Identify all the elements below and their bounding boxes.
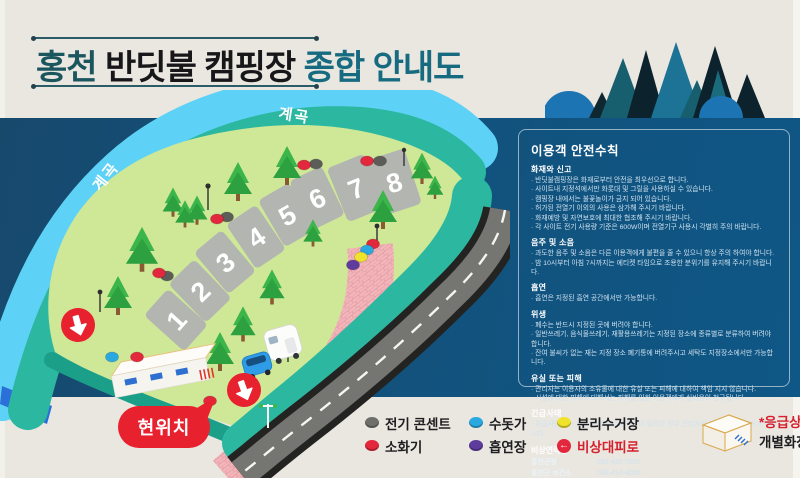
fire-extinguisher-marker bbox=[211, 214, 224, 224]
contact-row: 홍천군청033-432-7801 bbox=[531, 458, 777, 469]
smoking-area-marker bbox=[347, 260, 360, 270]
contact-name: 홍천군 보건소 bbox=[531, 469, 597, 478]
safety-heading: 이용객 안전수칙 bbox=[531, 140, 777, 159]
title-suffix: 종합 안내도 bbox=[295, 49, 463, 87]
legend-label: 수돗가 bbox=[489, 413, 526, 433]
water-tap-icon bbox=[469, 417, 483, 428]
section-title: 흡연 bbox=[531, 282, 777, 293]
legend-label: 전기 콘센트 bbox=[385, 413, 451, 433]
legend-item-smoking-area: 흡연장 bbox=[469, 436, 557, 456]
section-title: 화재와 신고 bbox=[531, 164, 777, 175]
electric-outlet-marker bbox=[374, 156, 387, 166]
rule-item: · 반딧불캠핑장은 화재로부터 안전을 최우선으로 합니다. bbox=[531, 176, 777, 185]
rule-item: · 일반쓰레기, 음식물쓰레기, 재활용쓰레기는 지정된 장소에 종류별로 분류… bbox=[531, 330, 777, 349]
section-items: · 관리자는 이용자의 소유물에 대한 유실 또는 피해에 대하여 책임 지지 … bbox=[531, 385, 777, 404]
safety-rules-panel: 이용객 안전수칙 화재와 신고· 반딧불캠핑장은 화재로부터 안전을 최우선으로… bbox=[518, 129, 790, 387]
campground-sign: 홍천 반딧불 캠핑장 종합 안내도 bbox=[0, 0, 800, 478]
rule-item: · 잔여 불씨가 없는 재는 지정 장소 폐기통에 버려주시고 세탁도 지정장소… bbox=[531, 349, 777, 368]
title-region: 홍천 bbox=[36, 49, 97, 87]
contact-value: 033-434-4000 bbox=[597, 469, 641, 478]
legend-label: 분리수거장 bbox=[577, 413, 639, 433]
recycling-station-icon bbox=[557, 417, 571, 428]
rule-item: · 흡연은 지정된 흡연 공간에서만 가능합니다. bbox=[531, 294, 777, 303]
title-bracket-top bbox=[33, 37, 317, 39]
facility-line-2: 개별화장실 / 매점 bbox=[759, 433, 800, 453]
rule-item: · 관리자는 이용자의 소유물에 대한 유실 또는 피해에 대하여 책임 지지 … bbox=[531, 385, 777, 394]
fire-extinguisher-marker bbox=[298, 160, 311, 170]
smoking-area-icon bbox=[469, 440, 483, 451]
title-name: 반딧불 캠핑장 bbox=[97, 49, 296, 87]
section-items: · 폐수는 반드시 지정된 곳에 버려야 합니다.· 일반쓰레기, 음식물쓰레기… bbox=[531, 321, 777, 368]
electric-outlet-marker bbox=[310, 159, 323, 169]
rule-item: · 화재예방 및 자연보호에 최대한 협조해 주시기 바랍니다. bbox=[531, 214, 777, 223]
page-title: 홍천 반딧불 캠핑장 종합 안내도 bbox=[36, 40, 463, 89]
fire-extinguisher-marker bbox=[361, 156, 374, 166]
title-bracket-bottom bbox=[33, 85, 317, 87]
contact-name: 홍천군청 bbox=[531, 458, 597, 469]
map-legend: 전기 콘센트수돗가분리수거장소화기흡연장←비상대피로 *응급상자 / 개수대 개… bbox=[365, 411, 800, 457]
legend-item-water-tap: 수돗가 bbox=[469, 413, 557, 433]
legend-label: 비상대피로 bbox=[577, 436, 639, 456]
electric-outlet-icon bbox=[365, 417, 379, 428]
contact-row: 홍천군 보건소033-434-4000 bbox=[531, 469, 777, 478]
fire-extinguisher-icon bbox=[365, 440, 379, 451]
svg-text:현위치: 현위치 bbox=[138, 418, 191, 438]
section-title: 음주 및 소음 bbox=[531, 237, 777, 248]
legend-item-fire-extinguisher: 소화기 bbox=[365, 436, 469, 456]
rule-item: · 폐수는 반드시 지정된 곳에 버려야 합니다. bbox=[531, 321, 777, 330]
legend-item-emergency-exit: ←비상대피로 bbox=[557, 436, 685, 456]
legend-label: 흡연장 bbox=[489, 436, 526, 456]
rule-item: · 각 사이트 전기 사용량 기준은 600W이며 전열기구 사용시 각별히 주… bbox=[531, 223, 777, 232]
contact-value: 033-432-7801 bbox=[597, 458, 641, 469]
section-items: · 과도한 음주 및 소음은 다른 이용객에게 불편을 줄 수 있으니 항상 주… bbox=[531, 249, 777, 277]
section-items: · 반딧불캠핑장은 화재로부터 안전을 최우선으로 합니다.· 사이트내 지정석… bbox=[531, 176, 777, 232]
section-title: 위생 bbox=[531, 309, 777, 320]
safety-sections: 화재와 신고· 반딧불캠핑장은 화재로부터 안전을 최우선으로 합니다.· 사이… bbox=[531, 164, 777, 439]
legend-grid: 전기 콘센트수돗가분리수거장소화기흡연장←비상대피로 bbox=[365, 411, 685, 457]
contact-rows: 홍천군청033-432-7801홍천군 보건소033-434-4000홍천 경찰… bbox=[531, 458, 777, 478]
legend-item-electric-outlet: 전기 콘센트 bbox=[365, 413, 469, 433]
fire-extinguisher-marker bbox=[153, 268, 166, 278]
water-tap-marker bbox=[106, 352, 119, 362]
current-location-badge: 현위치 bbox=[118, 399, 215, 448]
rule-item: · 사이트내 지정석에서만 화롯대 및 그릴을 사용하실 수 있습니다. bbox=[531, 185, 777, 194]
facility-box-icon bbox=[699, 411, 755, 455]
facility-line-1: *응급상자 / 개수대 bbox=[759, 413, 800, 433]
fire-extinguisher-marker bbox=[131, 352, 144, 362]
emergency-exit-arrow-icon: ← bbox=[557, 439, 571, 453]
mountains-graphic bbox=[545, 40, 800, 118]
section-title: 유실 또는 피해 bbox=[531, 373, 777, 384]
rule-item: · 캠핑장 내에서는 불꽃놀이가 금지 되어 있습니다. bbox=[531, 195, 777, 204]
rule-item: · 밤 10시부터 아침 7시까지는 에티켓 타임으로 조용한 분위기를 유지해… bbox=[531, 259, 777, 278]
rule-item: · 시설에 대한 피해에 대해서는 피해를 입힌 이용객에게 실비용이 청구됩니… bbox=[531, 394, 777, 403]
rule-item: · 과도한 음주 및 소음은 다른 이용객에게 불편을 줄 수 있으니 항상 주… bbox=[531, 249, 777, 258]
section-items: · 흡연은 지정된 흡연 공간에서만 가능합니다. bbox=[531, 294, 777, 303]
legend-label: 소화기 bbox=[385, 436, 422, 456]
legend-item-recycling-station: 분리수거장 bbox=[557, 413, 685, 433]
rule-item: · 허가된 전열기 이외의 사용은 삼가해 주시기 바랍니다. bbox=[531, 204, 777, 213]
legend-facility: *응급상자 / 개수대 개별화장실 / 매점 bbox=[699, 411, 800, 455]
